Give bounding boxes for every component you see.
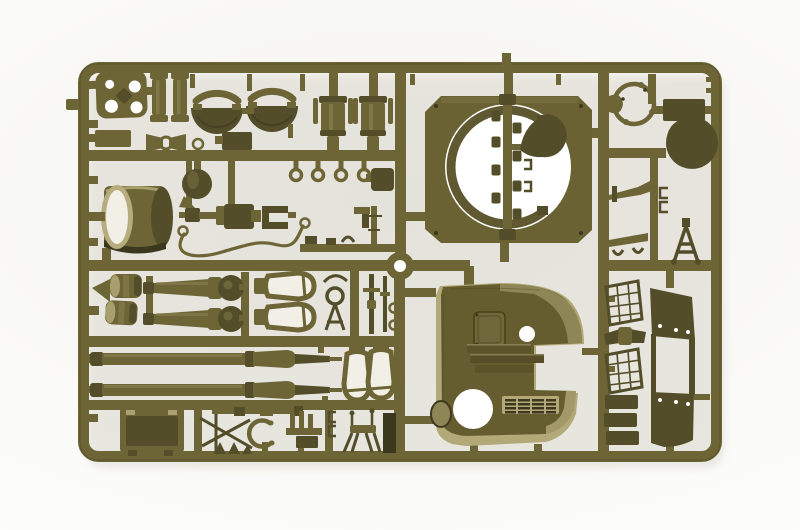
small-plate-part — [605, 395, 638, 409]
mount-plate-part — [88, 70, 156, 119]
shock-absorber-part — [150, 72, 168, 122]
small-plate-part — [604, 413, 637, 427]
hull-grille — [502, 396, 559, 414]
hull-hatch — [474, 312, 505, 347]
road-wheel-part — [110, 274, 142, 298]
gate — [322, 396, 328, 402]
hull-corner-cover — [431, 401, 451, 427]
stowage-box-part — [120, 408, 184, 456]
bowl-connector — [242, 108, 254, 114]
dome-part — [666, 117, 718, 169]
block-part — [663, 99, 705, 121]
hull-round-opening-small — [519, 326, 535, 342]
sprue-photo — [0, 0, 800, 530]
runner-junction-ring — [386, 252, 414, 280]
gate — [239, 284, 249, 290]
tall-block-part — [383, 413, 396, 453]
gate — [239, 315, 249, 321]
sprue-photo-svg — [0, 0, 800, 530]
road-wheel-part — [105, 300, 138, 326]
hull-round-opening-large — [453, 389, 493, 429]
shock-absorber-part — [171, 72, 189, 122]
gate — [318, 344, 324, 353]
small-plate-part — [606, 431, 639, 445]
